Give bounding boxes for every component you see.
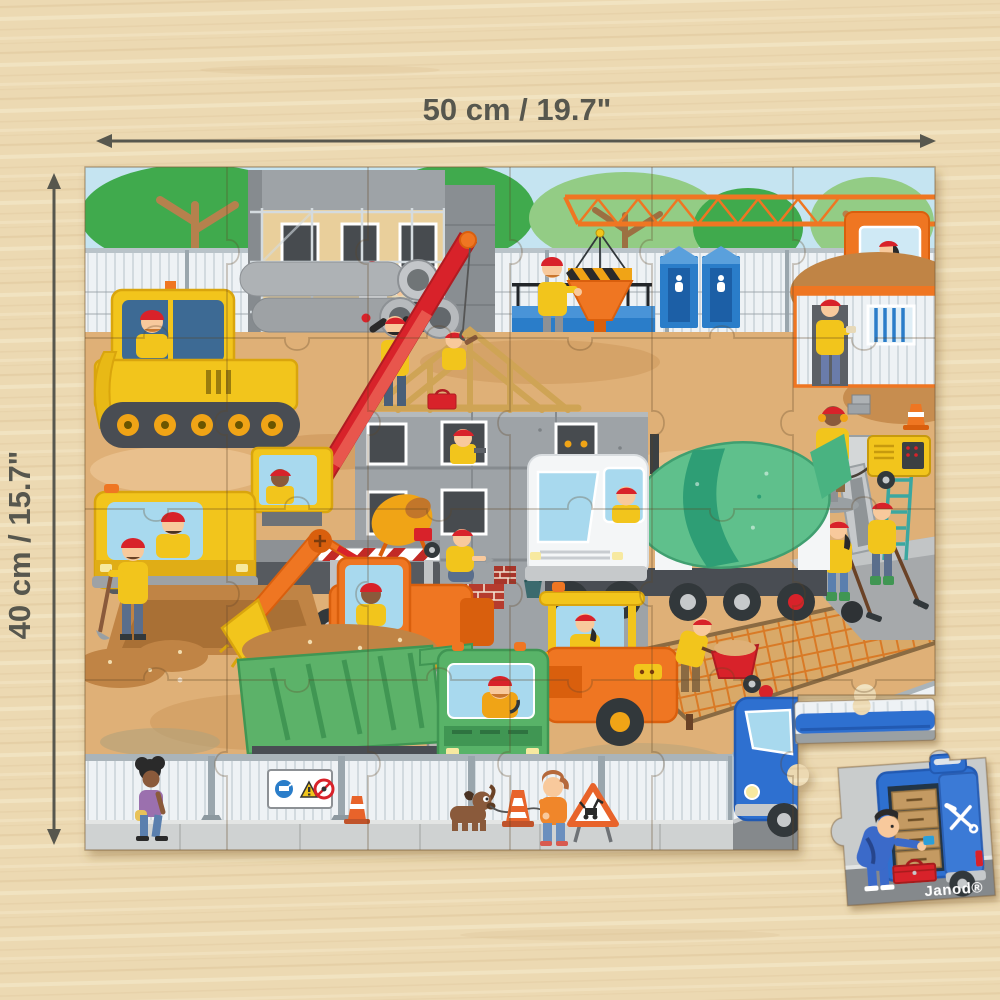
mixer-cab [525,455,648,581]
black-bucket [841,601,863,623]
height-dimension-label: 40 cm / 15.7" [2,451,37,640]
wood-grain-streak [460,929,780,941]
crane-upper-cab [252,448,332,526]
product-photo: 50 cm / 19.7" 40 cm / 15.7" [0,0,1000,1000]
spray-tool [923,835,935,845]
sidewalk [85,824,733,850]
detached-roof-strip-piece [794,695,935,744]
bottom-fence [85,754,735,822]
detached-corner-piece: Janod® [819,741,1000,912]
wood-grain-streak [200,65,440,75]
width-dimension-label: 50 cm / 19.7" [423,92,612,127]
safety-signs-panel [268,770,333,808]
dump-cab [436,642,550,768]
window-worker [442,422,486,464]
puzzle-product-illustration: 50 cm / 19.7" 40 cm / 15.7" [0,0,1000,1000]
